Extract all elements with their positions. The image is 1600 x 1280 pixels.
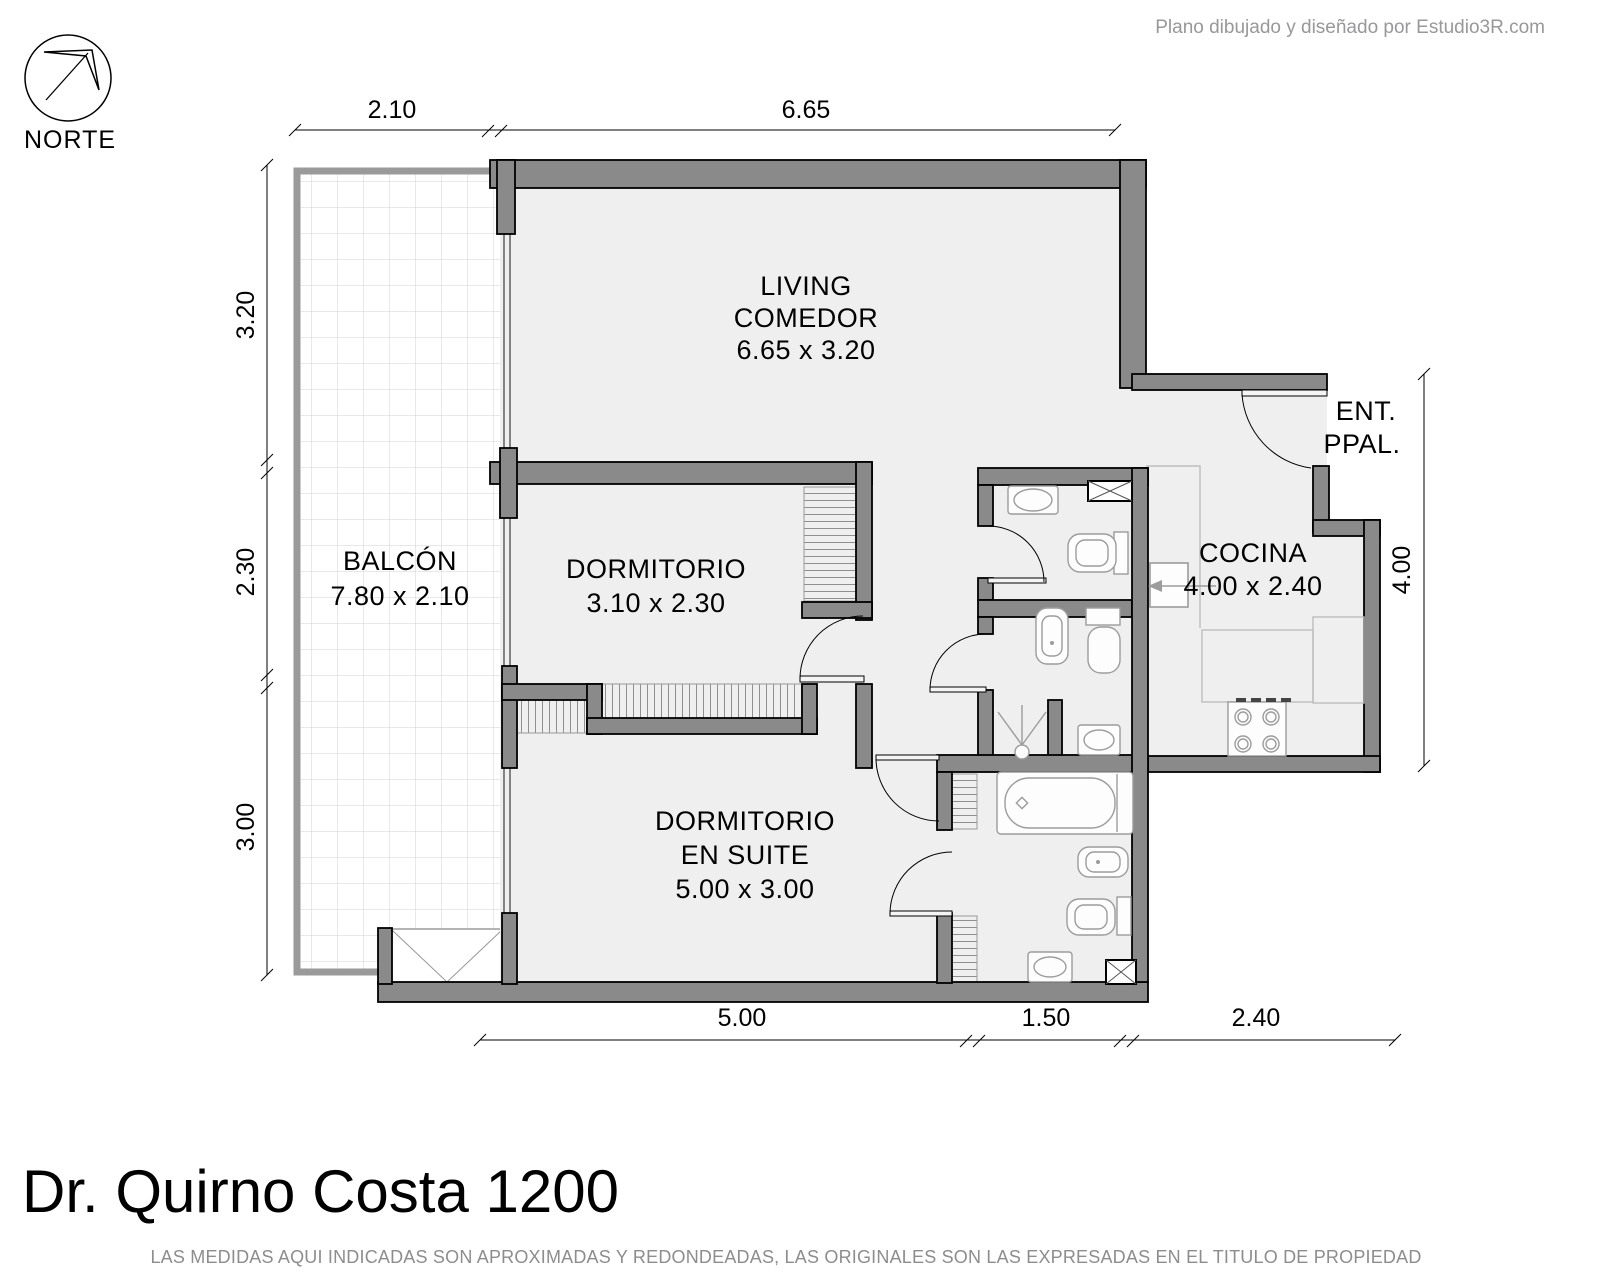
bath2-sink (1078, 725, 1120, 755)
bedroom-closet (804, 487, 856, 601)
toilette-sink (1008, 486, 1058, 514)
bathtub (997, 772, 1133, 834)
dim-left: 3.20 2.30 3.00 (232, 159, 273, 981)
suite-label-2: EN SUITE (681, 840, 810, 870)
toilette-toilet (1068, 532, 1128, 574)
wall-niche-left (378, 928, 392, 984)
dim-left-1: 3.20 (232, 291, 260, 340)
wall-hall-left (856, 684, 872, 768)
wall-ensuite-bath-top (937, 755, 1148, 772)
compass: NORTE (24, 35, 116, 154)
wall-bedroom-right (856, 462, 872, 620)
wall-divider-b (587, 718, 817, 734)
entrance-label-1: ENT. (1336, 396, 1397, 426)
floor-plan-page: 2.10 6.65 3.20 2.30 3.00 4.00 (0, 0, 1600, 1280)
compass-arrow-icon (44, 50, 99, 90)
dim-top-1: 2.10 (368, 96, 417, 124)
wall-living-top (490, 160, 1146, 188)
dim-bottom-1: 5.00 (718, 1004, 767, 1032)
dim-bottom-2: 1.50 (1022, 1004, 1071, 1032)
wall-bedroom-top (490, 462, 872, 484)
living-size: 6.65 x 3.20 (736, 335, 875, 365)
balcony-niche (392, 928, 502, 983)
ensuite-sink (1028, 952, 1072, 982)
living-label-1: LIVING (760, 271, 852, 301)
compass-label: NORTE (24, 126, 116, 154)
wall-post-balcony-low (502, 666, 517, 768)
compass-circle (25, 35, 111, 121)
wall-bath2-left-b (978, 690, 993, 756)
kitchen-floor-upper (1146, 390, 1327, 530)
ensuite-bath-wall-band-bottom (952, 916, 977, 982)
wall-ensuite-bath-left-b (937, 913, 952, 983)
wall-entrance-top (1132, 374, 1327, 390)
wall-post-living-left (497, 160, 515, 234)
wall-kitchen-right (1364, 520, 1380, 772)
wall-bottom (378, 982, 1148, 1002)
ensuite-bidet (1078, 847, 1128, 877)
wall-kitchen-bottom (1114, 756, 1380, 772)
compass-needle (46, 53, 88, 100)
bedroom-size: 3.10 x 2.30 (586, 588, 725, 618)
wall-living-right (1120, 160, 1146, 388)
duct-ensuite-bath (1106, 960, 1136, 984)
suite-label-1: DORMITORIO (655, 806, 835, 836)
bath2-bidet (1036, 608, 1068, 664)
wall-niche-right (502, 913, 517, 984)
dim-bottom-3: 2.40 (1232, 1004, 1281, 1032)
wall-post-balcony-mid (500, 448, 517, 518)
wall-ensuite-bath-left-a (937, 772, 952, 830)
entrance-label-2: PPAL. (1323, 429, 1400, 459)
dim-right-1: 4.00 (1388, 546, 1416, 595)
wall-bath2-left-a (978, 617, 993, 634)
wall-toilette-left-a (978, 485, 993, 526)
suite-closet-small (517, 700, 587, 733)
dim-left-2: 2.30 (232, 548, 260, 597)
ensuite-toilet (1067, 897, 1131, 935)
kitchen-size: 4.00 x 2.40 (1183, 571, 1322, 601)
wall-divider-step2 (802, 684, 817, 734)
disclaimer-text: LAS MEDIDAS AQUI INDICADAS SON APROXIMAD… (150, 1247, 1421, 1267)
balcony-size: 7.80 x 2.10 (330, 581, 469, 611)
bedroom-label: DORMITORIO (566, 554, 746, 584)
floor-plan-drawing: 2.10 6.65 3.20 2.30 3.00 4.00 (0, 0, 1600, 1280)
dim-top-2: 6.65 (782, 96, 831, 124)
bath2-toilet (1086, 608, 1120, 673)
dim-bottom: 5.00 1.50 2.40 (474, 1004, 1401, 1047)
duct-toilette (1088, 481, 1132, 501)
living-label-2: COMEDOR (734, 303, 879, 333)
balcony-area (297, 171, 507, 983)
wall-services-right (1132, 468, 1148, 982)
wall-shower-divider (1048, 700, 1062, 756)
balcony-label: BALCÓN (343, 545, 457, 576)
suite-size: 5.00 x 3.00 (675, 874, 814, 904)
bedroom-closet-long (602, 684, 802, 719)
dim-left-3: 3.00 (232, 803, 260, 852)
dim-top: 2.10 6.65 (289, 96, 1121, 137)
credit-text: Plano dibujado y diseñado por Estudio3R.… (1155, 17, 1545, 38)
ensuite-bath-wall-band-top (952, 774, 977, 829)
stove (1228, 698, 1291, 756)
kitchen-label: COCINA (1199, 538, 1307, 568)
page-title: Dr. Quirno Costa 1200 (22, 1158, 619, 1225)
